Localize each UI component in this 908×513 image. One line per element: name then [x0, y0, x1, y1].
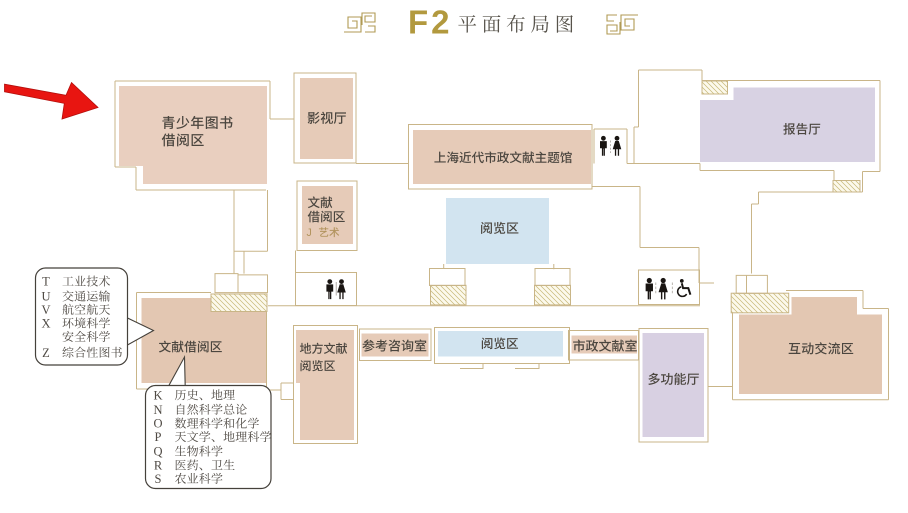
svg-text:X: X [41, 317, 50, 331]
svg-text:Z: Z [42, 346, 50, 360]
svg-text:U: U [41, 290, 50, 304]
svg-text:K: K [153, 388, 162, 402]
svg-text:J: J [307, 227, 312, 239]
svg-text:R: R [154, 459, 163, 473]
svg-text:F2: F2 [408, 4, 453, 41]
svg-text:Q: Q [153, 445, 162, 459]
svg-text:S: S [155, 472, 162, 486]
svg-text:T: T [42, 275, 50, 289]
svg-text:O: O [153, 417, 162, 431]
svg-text:V: V [41, 303, 50, 317]
svg-text:P: P [155, 430, 162, 444]
svg-text:N: N [153, 403, 162, 417]
